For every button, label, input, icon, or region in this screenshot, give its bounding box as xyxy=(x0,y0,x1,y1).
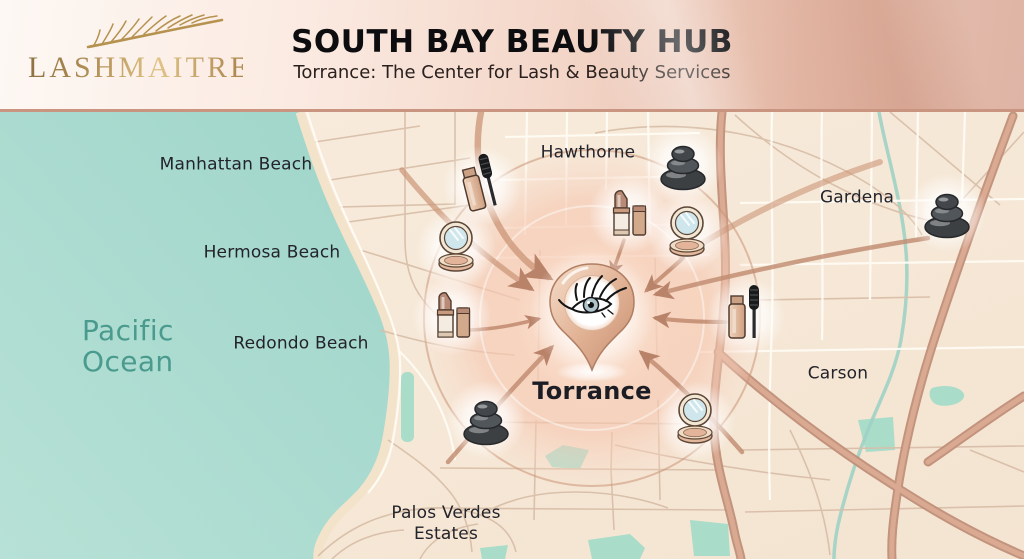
compact-icon xyxy=(647,194,727,274)
brand-name: LASHMAITRE xyxy=(28,53,243,83)
compact-icon xyxy=(655,381,735,461)
page-title: SOUTH BAY BEAUTY HUB xyxy=(291,27,733,58)
stones-icon xyxy=(643,125,723,205)
stones-icon xyxy=(907,173,987,253)
infographic-canvas: LASHMAITRE SOUTH BAY BEAUTY HUB Torrance… xyxy=(0,0,1024,559)
header-banner: LASHMAITRE SOUTH BAY BEAUTY HUB Torrance… xyxy=(0,0,1024,112)
map-canvas xyxy=(0,112,1024,559)
lash-swoosh-icon xyxy=(80,14,230,50)
brand-logo: LASHMAITRE xyxy=(28,8,243,83)
stones-icon xyxy=(446,380,526,460)
lipstick-icon xyxy=(412,276,492,356)
page-subtitle: Torrance: The Center for Lash & Beauty S… xyxy=(293,64,730,82)
map-area: Pacific Ocean Manhattan BeachHermosa Bea… xyxy=(0,112,1024,559)
mascara-icon xyxy=(706,276,786,356)
